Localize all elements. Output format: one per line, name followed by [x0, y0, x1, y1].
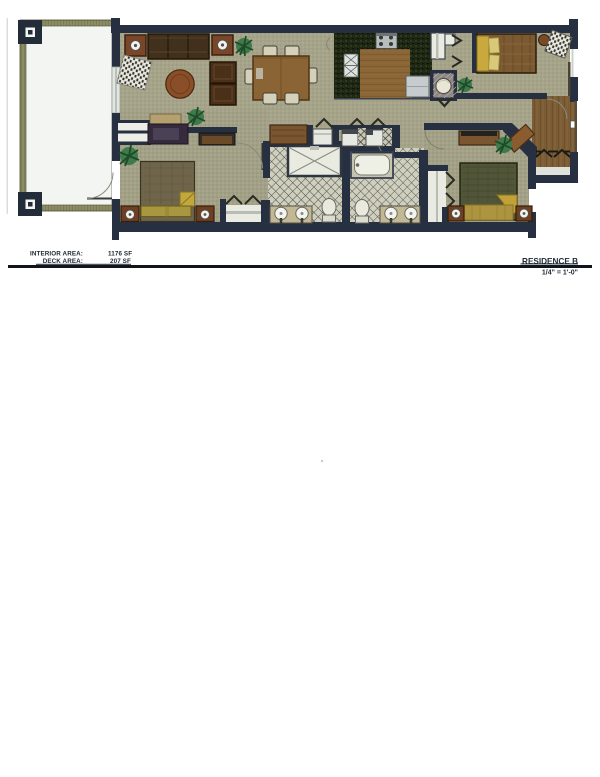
svg-text:1/4" = 1'-0": 1/4" = 1'-0"	[542, 270, 578, 277]
svg-text:INTERIOR AREA:: INTERIOR AREA:	[30, 251, 83, 258]
svg-text:RESIDENCE B: RESIDENCE B	[522, 257, 578, 266]
svg-text:1176 SF: 1176 SF	[108, 251, 132, 258]
